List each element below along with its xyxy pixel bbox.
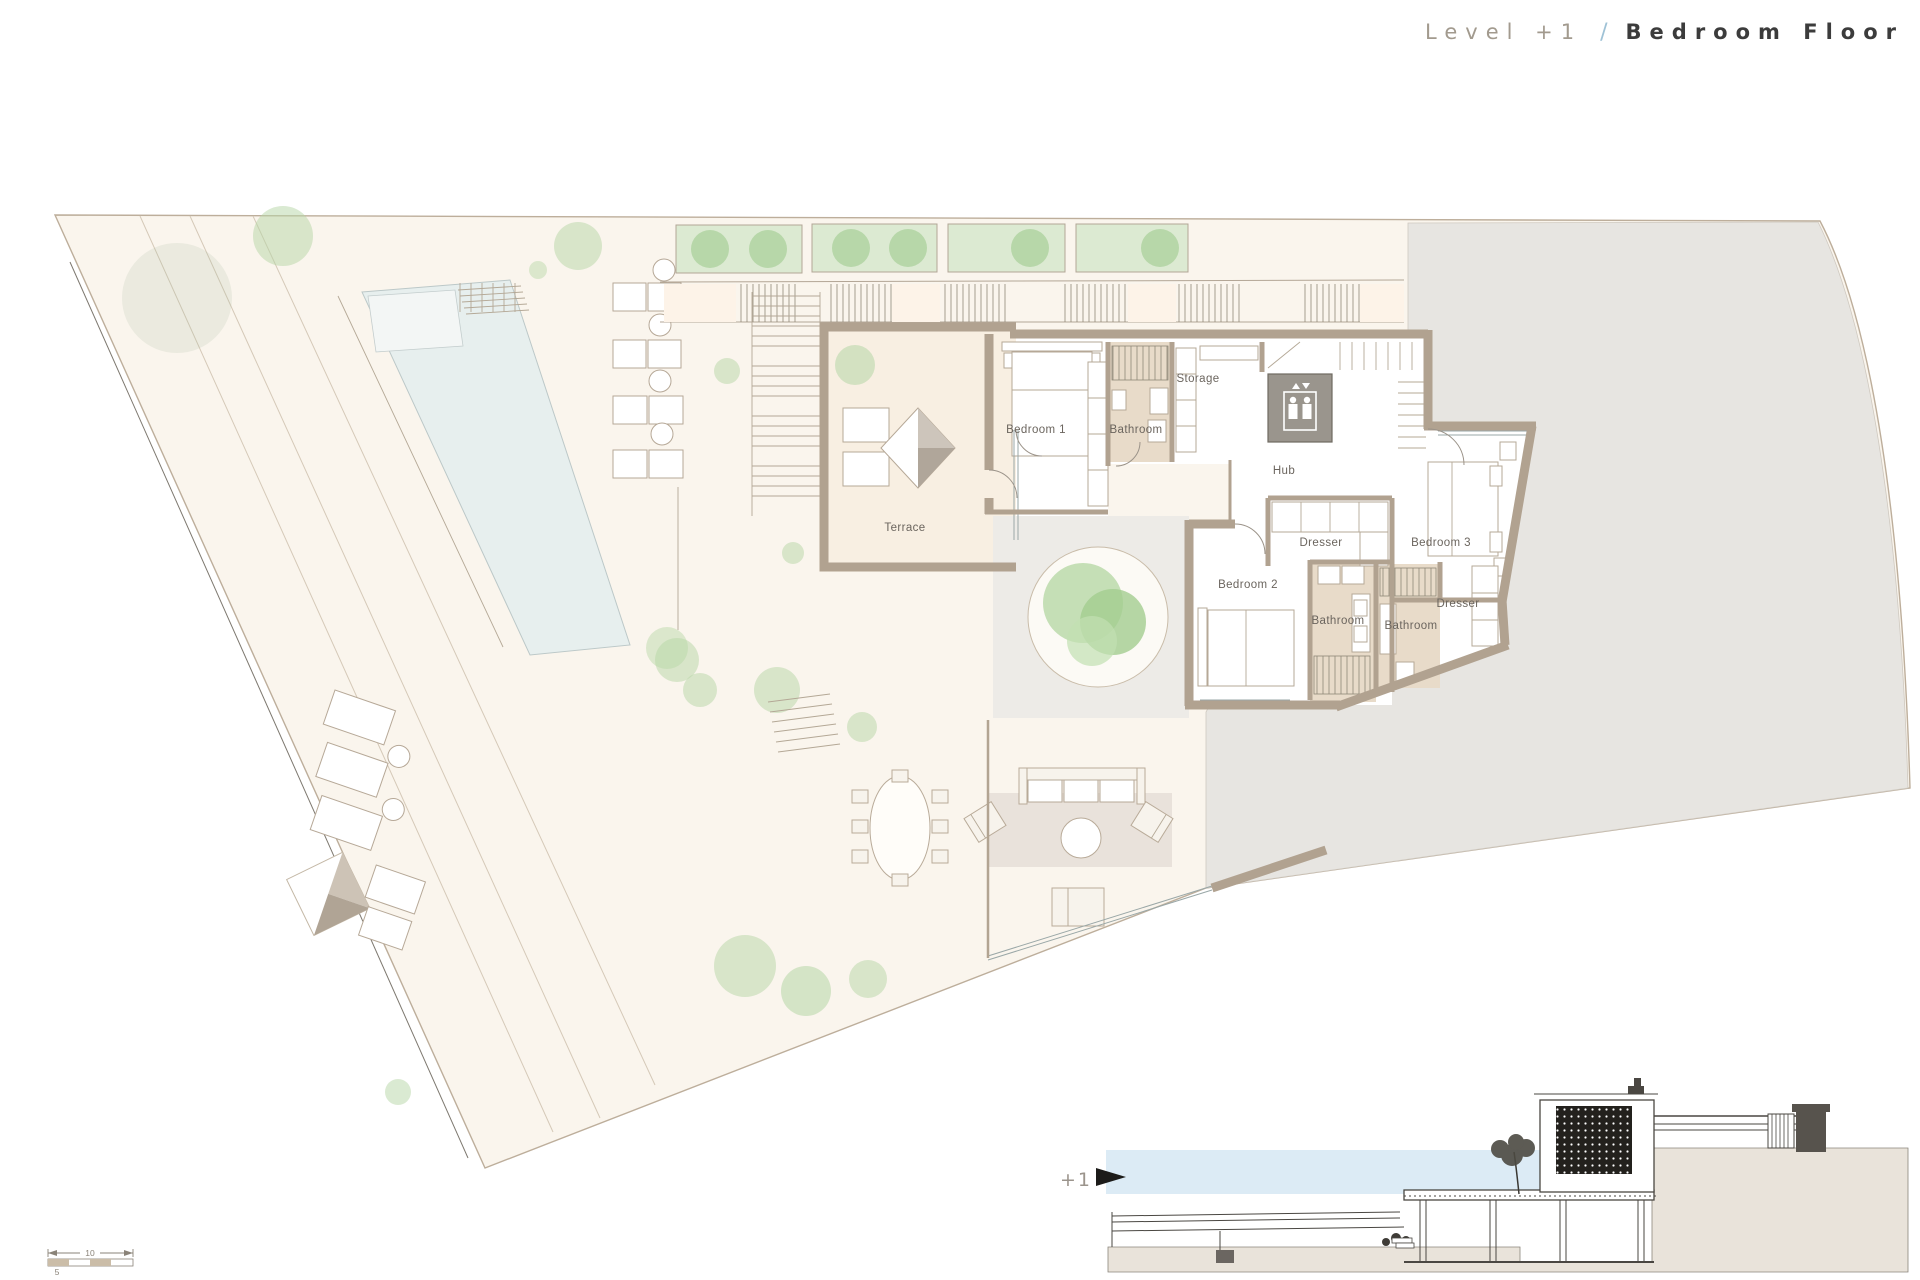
elevator-icon bbox=[1268, 374, 1332, 442]
label-bedroom3: Bedroom 3 bbox=[1411, 537, 1471, 549]
scale-minor-label: 5 bbox=[55, 1267, 60, 1277]
label-dresser-upper: Dresser bbox=[1299, 537, 1342, 549]
section-canopy bbox=[1654, 1104, 1830, 1152]
label-dresser-lower: Dresser bbox=[1436, 598, 1479, 610]
scale-major-label: 10 bbox=[85, 1248, 95, 1258]
section-drawing: +1 bbox=[1060, 1078, 1908, 1272]
pool-shallow-shelf bbox=[368, 290, 463, 352]
label-bedroom2: Bedroom 2 bbox=[1218, 579, 1278, 591]
label-storage: Storage bbox=[1176, 373, 1219, 385]
label-bedroom1: Bedroom 1 bbox=[1006, 424, 1066, 436]
floor-plan-canvas: Terrace Bedroom 1 Bathroom Storage Hub D… bbox=[0, 0, 1920, 1280]
label-bathroom2: Bathroom bbox=[1311, 615, 1364, 627]
lounge-chair bbox=[1052, 888, 1104, 926]
label-bathroom1: Bathroom bbox=[1109, 424, 1162, 436]
level-marker-text: +1 bbox=[1060, 1169, 1092, 1191]
architectural-sheet: Level +1 / Bedroom Floor bbox=[0, 0, 1920, 1280]
section-steps bbox=[1392, 1238, 1414, 1248]
label-bathroom3: Bathroom bbox=[1384, 620, 1437, 632]
scale-bar: 10 5 bbox=[48, 1248, 133, 1277]
label-hub: Hub bbox=[1273, 465, 1295, 477]
section-pier bbox=[1216, 1250, 1234, 1263]
courtyard-tree bbox=[1028, 547, 1168, 687]
bedroom2-furniture bbox=[1198, 608, 1294, 686]
label-terrace: Terrace bbox=[884, 522, 925, 534]
section-deck bbox=[1112, 1212, 1404, 1250]
